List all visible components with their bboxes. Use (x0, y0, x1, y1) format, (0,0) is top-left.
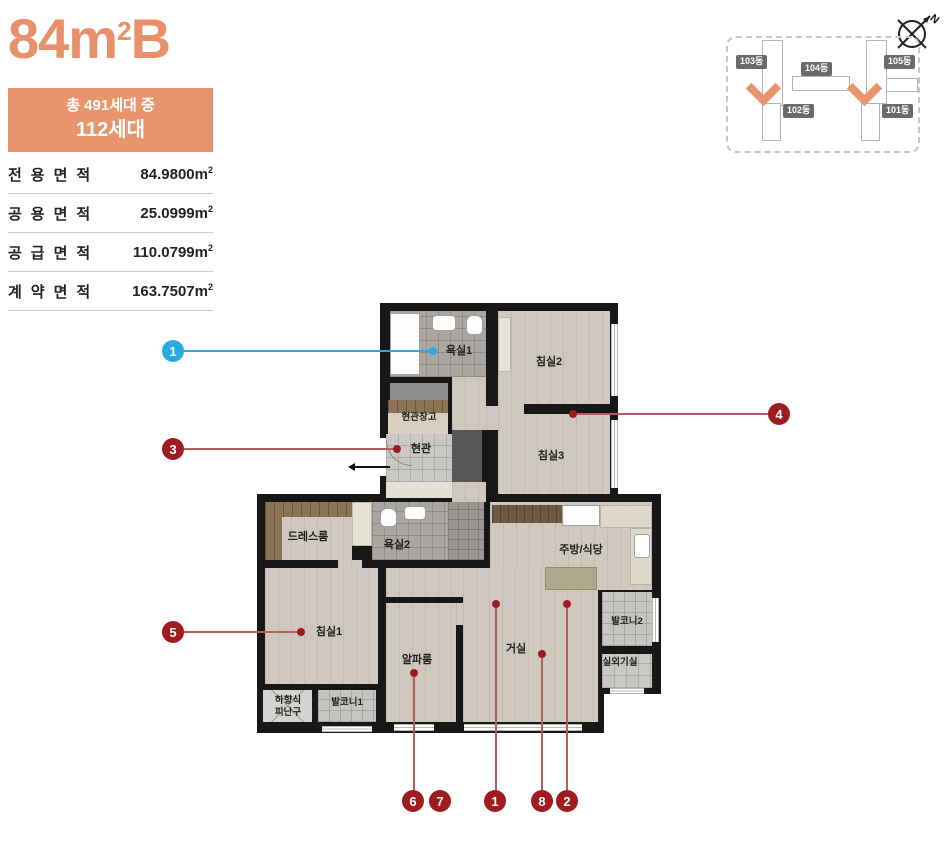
dot-living-8 (538, 650, 546, 658)
room-label-bath2: 욕실2 (384, 539, 410, 553)
room-label-balcony2: 발코니2 (611, 616, 643, 628)
room-label-alpha: 알파룸 (402, 654, 432, 668)
kitchen-island (545, 567, 597, 590)
sink-bath2 (404, 506, 426, 520)
row-value: 110.0799m2 (133, 243, 213, 261)
room-label-entry-storage: 현관창고 (402, 412, 437, 424)
window-balcony1 (322, 726, 372, 732)
building-badge-104: 104동 (801, 62, 832, 76)
corridor-mid-floor (386, 568, 463, 597)
marker-6: 6 (402, 790, 424, 812)
room-label-bed1: 침실1 (316, 626, 342, 640)
leader-line-3 (184, 448, 397, 450)
leader-line-6 (413, 677, 415, 790)
marker-2: 2 (556, 790, 578, 812)
building-101 (861, 103, 880, 141)
marker-1-bottom: 1 (484, 790, 506, 812)
kitchen-sink (634, 534, 650, 558)
building-102 (762, 103, 781, 141)
room-label-bath1: 욕실1 (446, 345, 472, 359)
room-label-outdoorunit: 실외기실 (603, 657, 638, 669)
row-label: 계약면적 (8, 281, 99, 302)
table-row: 공급면적 110.0799m2 (8, 233, 213, 272)
marker-7: 7 (429, 790, 451, 812)
badge-line2: 112세대 (76, 117, 145, 144)
wardrobe-top (265, 502, 352, 517)
table-row: 계약면적 163.7507m2 (8, 272, 213, 311)
leader-line-5 (184, 631, 301, 633)
building-badge-101: 101동 (882, 104, 913, 118)
row-label: 전용면적 (8, 164, 99, 185)
door-gap-hall (486, 406, 498, 430)
wardrobe-left (265, 517, 282, 560)
leader-line-4 (573, 413, 768, 415)
kitchen-counter-top (600, 505, 652, 528)
dot-bed-wall (569, 410, 577, 418)
building-badge-102: 102동 (783, 104, 814, 118)
entry-arrow-icon (348, 463, 355, 471)
room-label-balcony1: 발코니1 (331, 697, 363, 709)
door-gap-alpha (456, 603, 463, 625)
dot-bath1 (429, 347, 437, 355)
leader-line-1b (495, 608, 497, 790)
entry-door-gap (376, 438, 386, 476)
window-outdoorunit (610, 688, 644, 694)
leader-line-8 (541, 658, 543, 790)
table-row: 공용면적 25.0999m2 (8, 194, 213, 233)
door-gap-bed (498, 404, 524, 414)
dot-bed1 (297, 628, 305, 636)
marker-8: 8 (531, 790, 553, 812)
room-label-entry: 현관 (411, 443, 431, 457)
shower-bath2 (448, 502, 484, 560)
floorplan-page: 84m2B 총 491세대 중 112세대 전용면적 84.9800m2 공용면… (0, 0, 951, 864)
marker-5: 5 (162, 621, 184, 643)
room-living-floor (463, 568, 598, 722)
room-label-kitchen: 주방/식당 (559, 544, 603, 558)
closet-gray (390, 383, 448, 400)
dot-island (563, 600, 571, 608)
row-value: 25.0999m2 (140, 204, 213, 222)
window-living (464, 724, 582, 731)
door-gap-bed1 (338, 560, 362, 568)
building-104 (792, 76, 850, 91)
toilet-bath2 (380, 508, 397, 527)
room-label-bed3: 침실3 (538, 450, 564, 464)
dot-living-1 (492, 600, 500, 608)
room-label-dress: 드레스룸 (288, 531, 328, 545)
unit-count-badge: 총 491세대 중 112세대 (8, 88, 213, 152)
marker-3: 3 (162, 438, 184, 460)
room-label-living: 거실 (506, 643, 526, 657)
marker-4: 4 (768, 403, 790, 425)
window-bed2 (611, 324, 618, 396)
room-label-bed2: 침실2 (536, 356, 562, 370)
corridor-floor (452, 482, 486, 502)
table-row: 전용면적 84.9800m2 (8, 155, 213, 194)
title-suffix: B (131, 7, 170, 70)
closet-hall (352, 502, 372, 546)
building-badge-105: 105동 (884, 55, 915, 69)
dot-alpha (410, 669, 418, 677)
leader-line-1 (184, 350, 433, 352)
row-value: 84.9800m2 (140, 165, 213, 183)
window-bed3 (611, 420, 618, 488)
corridor-upper-floor (452, 377, 486, 430)
sink-bath1 (432, 315, 456, 331)
shoe-cabinet (386, 482, 452, 498)
row-label: 공급면적 (8, 242, 99, 263)
closet-dark (452, 430, 482, 482)
building-badge-103: 103동 (736, 55, 767, 69)
building-105-wing (886, 78, 918, 92)
room-label-hatch: 하향식 피난구 (275, 695, 301, 719)
toilet-bath1 (466, 315, 483, 335)
leader-line-2 (566, 608, 568, 790)
dot-entry (393, 445, 401, 453)
kitchen-appliance (562, 505, 600, 526)
page-title: 84m2B (8, 6, 170, 71)
bathtub (390, 313, 420, 375)
title-sup: 2 (117, 16, 130, 46)
marker-1-side: 1 (162, 340, 184, 362)
entry-storage-shelf (388, 400, 448, 413)
area-table: 전용면적 84.9800m2 공용면적 25.0999m2 공급면적 110.0… (8, 155, 213, 311)
row-value: 163.7507m2 (132, 282, 213, 300)
badge-line1: 총 491세대 중 (66, 96, 155, 116)
svg-text:N: N (928, 12, 942, 26)
entry-arrow-line (354, 466, 390, 468)
window-balcony2 (652, 598, 659, 642)
row-label: 공용면적 (8, 203, 99, 224)
closet-bed2 (498, 317, 511, 372)
kitchen-cabinet (492, 505, 562, 523)
title-base: 84m (8, 7, 117, 70)
